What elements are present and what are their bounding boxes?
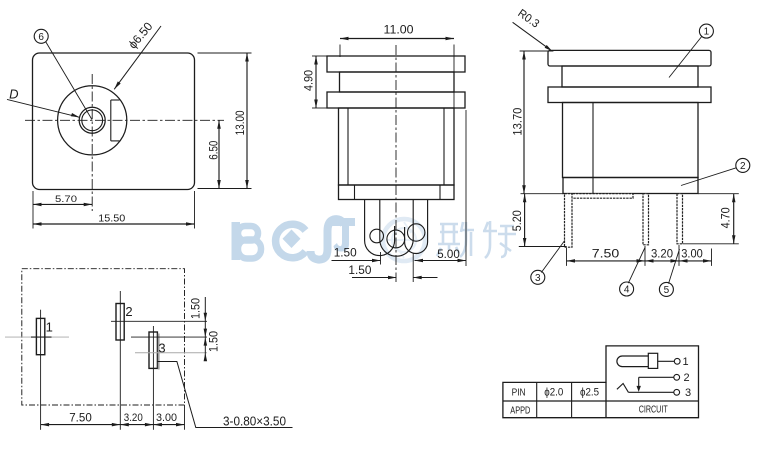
svg-text:CIRCUIT: CIRCUIT bbox=[639, 405, 668, 416]
svg-text:5.20: 5.20 bbox=[512, 210, 524, 231]
svg-text:1: 1 bbox=[704, 27, 710, 38]
svg-text:3.20: 3.20 bbox=[651, 246, 673, 260]
svg-text:7.50: 7.50 bbox=[592, 246, 620, 260]
svg-text:3: 3 bbox=[685, 387, 691, 399]
svg-text:11.00: 11.00 bbox=[384, 24, 415, 37]
svg-text:7.50: 7.50 bbox=[69, 411, 92, 425]
svg-text:4.90: 4.90 bbox=[303, 70, 315, 91]
svg-text:1.50: 1.50 bbox=[190, 298, 202, 319]
svg-text:6: 6 bbox=[38, 32, 44, 43]
svg-text:15.50: 15.50 bbox=[98, 213, 125, 224]
svg-text:5.00: 5.00 bbox=[437, 249, 460, 261]
svg-text:3.20: 3.20 bbox=[124, 412, 143, 424]
svg-text:1.50: 1.50 bbox=[334, 246, 357, 260]
svg-text:1.50: 1.50 bbox=[208, 331, 220, 352]
svg-text:13.00: 13.00 bbox=[235, 110, 247, 135]
svg-text:5.70: 5.70 bbox=[55, 194, 77, 205]
svg-text:3-0.80×3.50: 3-0.80×3.50 bbox=[223, 413, 286, 428]
svg-text:13.70: 13.70 bbox=[511, 107, 525, 135]
svg-text:3: 3 bbox=[535, 273, 541, 284]
svg-text:1.50: 1.50 bbox=[348, 263, 371, 277]
svg-text:3.00: 3.00 bbox=[681, 246, 703, 260]
svg-text:ϕ2.5: ϕ2.5 bbox=[580, 387, 599, 399]
svg-text:APPD: APPD bbox=[510, 406, 530, 417]
svg-text:4: 4 bbox=[624, 285, 630, 296]
svg-text:2: 2 bbox=[740, 161, 746, 172]
svg-text:1: 1 bbox=[46, 319, 53, 334]
svg-text:ϕ6.50: ϕ6.50 bbox=[125, 19, 155, 51]
svg-text:3.00: 3.00 bbox=[156, 412, 177, 424]
svg-text:1: 1 bbox=[682, 356, 688, 368]
svg-text:2: 2 bbox=[125, 304, 132, 319]
svg-text:5: 5 bbox=[664, 285, 670, 296]
svg-text:ϕ2.0: ϕ2.0 bbox=[544, 387, 563, 399]
svg-text:PIN: PIN bbox=[512, 387, 526, 398]
svg-text:6.50: 6.50 bbox=[208, 141, 220, 160]
svg-text:2: 2 bbox=[683, 372, 689, 384]
svg-text:D: D bbox=[9, 86, 18, 101]
svg-text:4.70: 4.70 bbox=[721, 207, 733, 228]
